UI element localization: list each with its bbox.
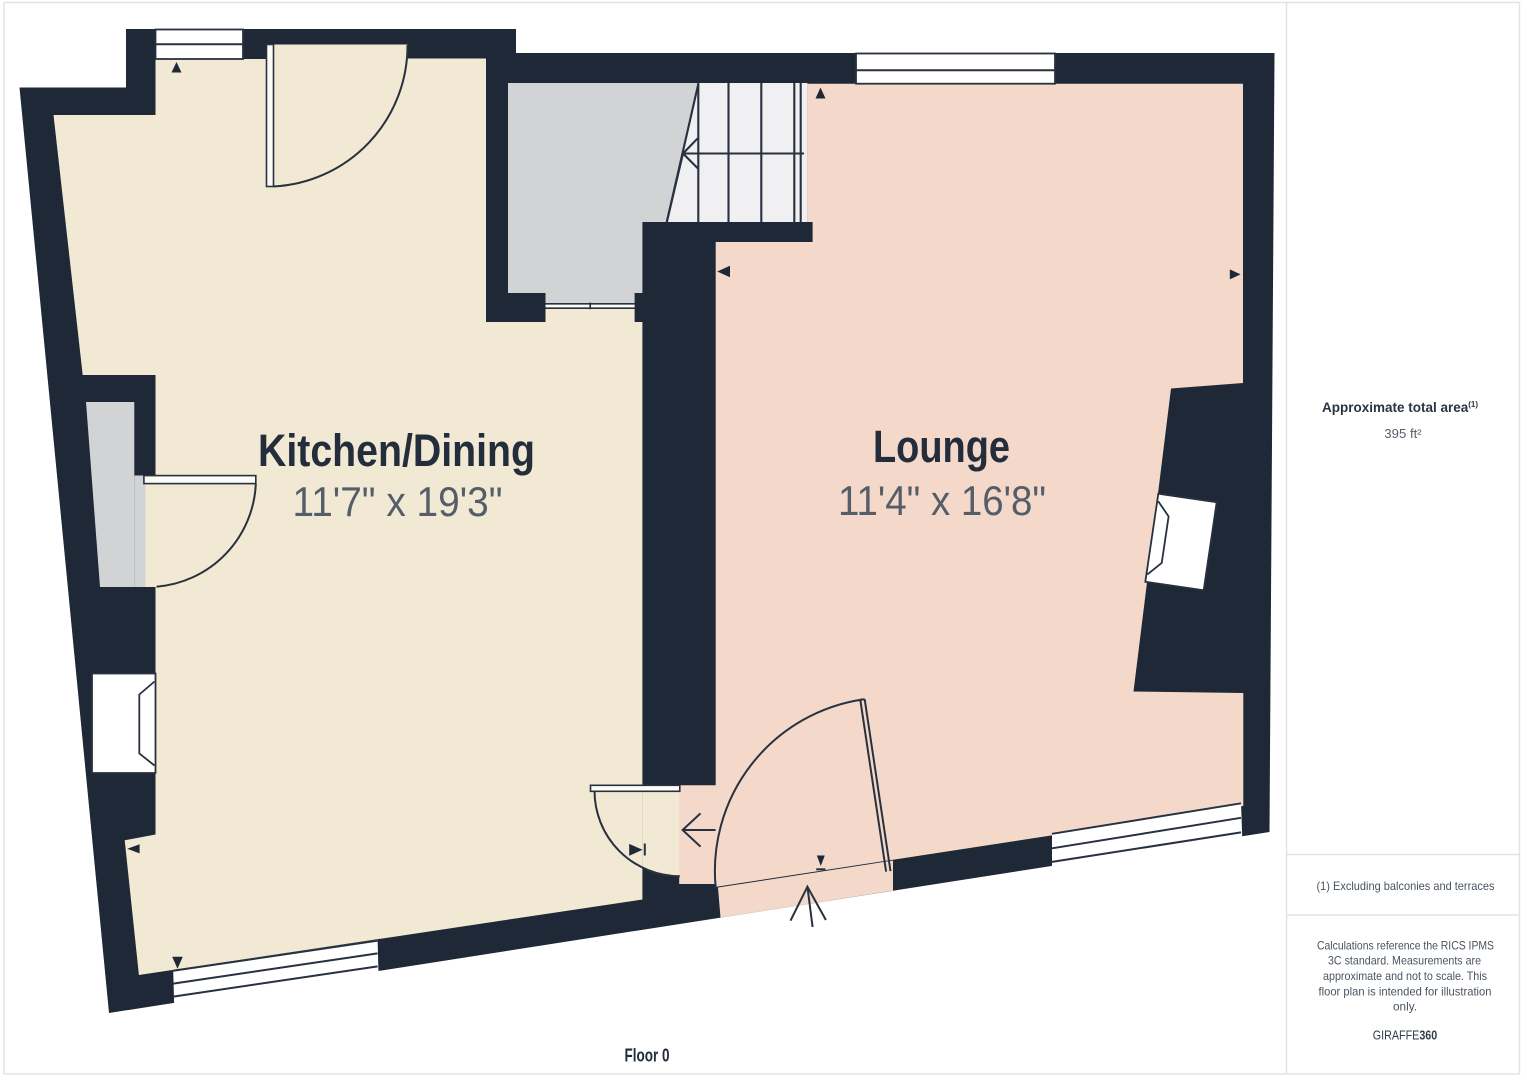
svg-text:only.: only. xyxy=(1393,1000,1417,1014)
svg-text:Floor 0: Floor 0 xyxy=(625,1046,670,1066)
svg-text:floor plan is intended for ill: floor plan is intended for illustration xyxy=(1319,985,1492,999)
svg-text:Approximate total area(1): Approximate total area(1) xyxy=(1322,400,1478,415)
svg-text:Kitchen/Dining: Kitchen/Dining xyxy=(258,425,535,476)
svg-text:Calculations reference the RIC: Calculations reference the RICS IPMS xyxy=(1317,939,1494,953)
svg-text:Lounge: Lounge xyxy=(873,421,1010,472)
svg-text:approximate and not to scale.: approximate and not to scale. This xyxy=(1323,969,1487,983)
svg-text:11'4" x 16'8": 11'4" x 16'8" xyxy=(838,477,1046,524)
svg-text:11'7" x 19'3": 11'7" x 19'3" xyxy=(293,478,503,525)
svg-text:3C standard. Measurements are: 3C standard. Measurements are xyxy=(1328,954,1481,968)
svg-text:(1) Excluding balconies and te: (1) Excluding balconies and terraces xyxy=(1317,879,1495,893)
svg-text:GIRAFFE360: GIRAFFE360 xyxy=(1373,1029,1438,1043)
svg-text:395 ft²: 395 ft² xyxy=(1384,426,1422,441)
